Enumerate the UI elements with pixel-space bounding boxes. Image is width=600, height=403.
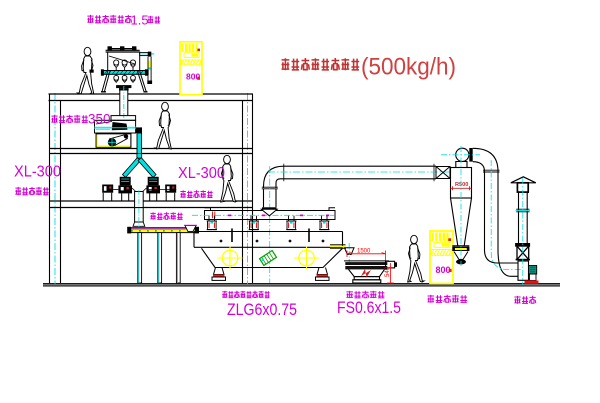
- svg-text:ZLG6x0.75: ZLG6x0.75: [227, 300, 297, 319]
- svg-text:FS0.6x1.5: FS0.6x1.5: [337, 298, 401, 317]
- svg-text:800: 800: [436, 265, 451, 275]
- svg-text:1.5: 1.5: [131, 13, 149, 28]
- svg-text:R500: R500: [455, 182, 468, 188]
- svg-text:XL-300: XL-300: [14, 164, 61, 181]
- svg-text:800: 800: [186, 72, 200, 82]
- svg-text:(500kg/h): (500kg/h): [361, 54, 456, 81]
- svg-text:1500: 1500: [357, 249, 371, 255]
- svg-text:540: 540: [385, 266, 391, 277]
- svg-text:XL-300: XL-300: [178, 165, 225, 182]
- svg-text:350: 350: [88, 112, 111, 127]
